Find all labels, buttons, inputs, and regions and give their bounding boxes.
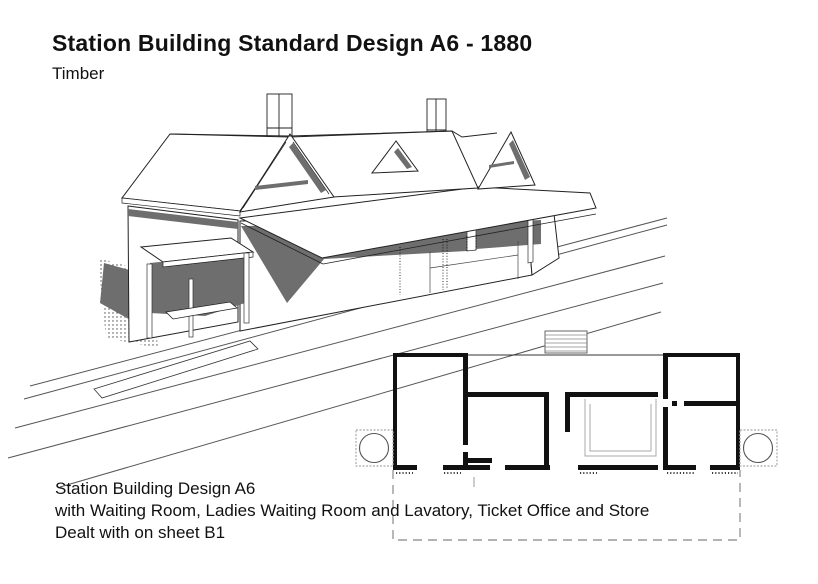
chimney-left (267, 94, 292, 138)
platform-ramp (94, 341, 258, 398)
figure-caption: Station Building Design A6 with Waiting … (55, 478, 649, 544)
ticket-counter (585, 399, 656, 456)
caption-line: Dealt with on sheet B1 (55, 522, 649, 544)
plan-walls (393, 353, 740, 470)
corner-post (528, 216, 533, 263)
caption-line: Station Building Design A6 (55, 478, 649, 500)
caption-line: with Waiting Room, Ladies Waiting Room a… (55, 500, 649, 522)
drawing-sheet: Station Building Standard Design A6 - 18… (0, 0, 818, 584)
water-butt-right (740, 430, 777, 466)
plan-chimney (545, 331, 587, 353)
right-gable (478, 132, 535, 189)
water-butt-left (356, 430, 393, 466)
